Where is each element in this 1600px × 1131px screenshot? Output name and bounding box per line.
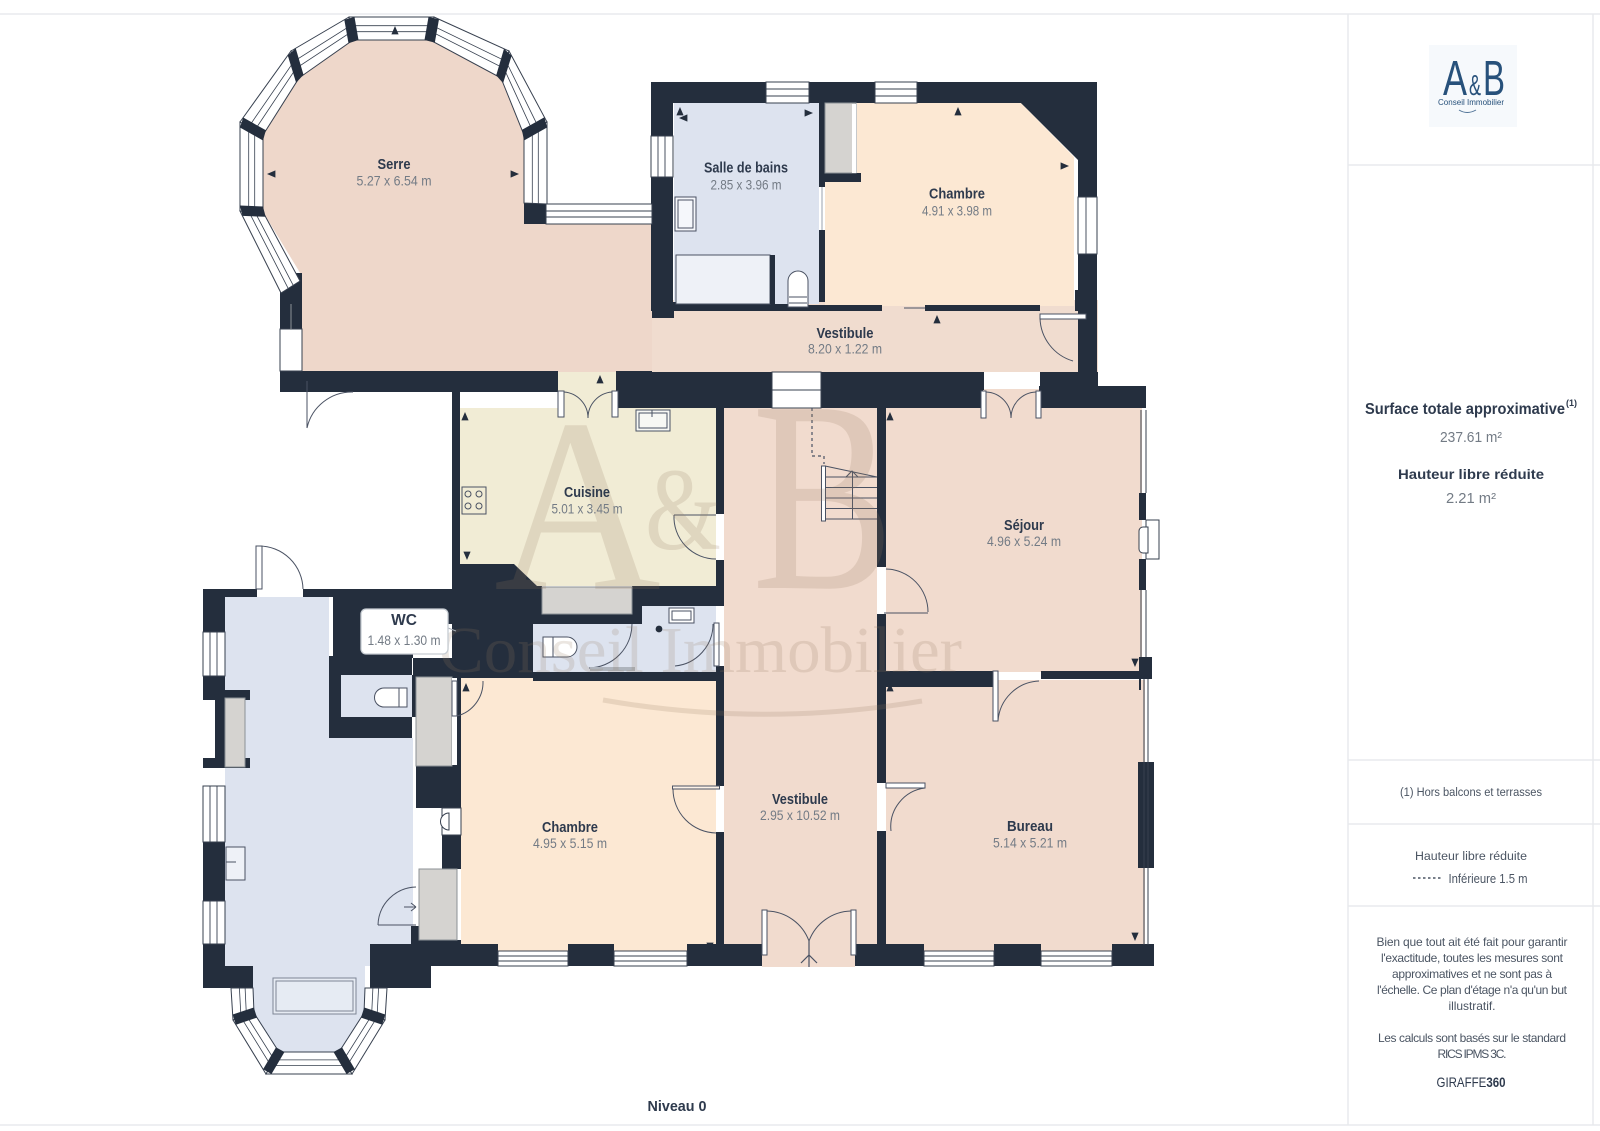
svg-text:l'échelle. Ce plan d'étage n'a: l'échelle. Ce plan d'étage n'a qu'un but	[1377, 983, 1568, 997]
svg-text:Vestibule: Vestibule	[772, 792, 828, 808]
svg-text:Chambre: Chambre	[542, 820, 598, 836]
svg-text:Séjour: Séjour	[1004, 518, 1044, 534]
svg-text:l'exactitude, toutes les mesur: l'exactitude, toutes les mesures sont	[1381, 951, 1564, 965]
svg-text:Salle de bains: Salle de bains	[704, 161, 788, 177]
svg-text:1.48 x 1.30 m: 1.48 x 1.30 m	[368, 632, 441, 648]
svg-text:237.61 m²: 237.61 m²	[1440, 430, 1502, 446]
svg-text:4.95 x 5.15 m: 4.95 x 5.15 m	[533, 835, 607, 851]
svg-text:5.01 x 3.45 m: 5.01 x 3.45 m	[552, 501, 623, 517]
svg-text:(1) Hors balcons et terrasses: (1) Hors balcons et terrasses	[1400, 785, 1542, 799]
svg-text:GIRAFFE360: GIRAFFE360	[1437, 1074, 1506, 1090]
svg-text:Niveau 0: Niveau 0	[648, 1099, 707, 1115]
svg-text:Hauteur libre réduite: Hauteur libre réduite	[1415, 849, 1527, 863]
svg-text:Bien que tout ait été fait pou: Bien que tout ait été fait pour garantir	[1377, 935, 1568, 949]
svg-text:5.14 x 5.21 m: 5.14 x 5.21 m	[993, 835, 1067, 851]
svg-text:4.96 x 5.24 m: 4.96 x 5.24 m	[987, 533, 1061, 549]
svg-text:Surface totale approximative: Surface totale approximative	[1365, 401, 1565, 418]
svg-text:approximatives et ne sont pas: approximatives et ne sont pas à	[1392, 967, 1552, 981]
svg-text:Chambre: Chambre	[929, 187, 985, 203]
svg-text:Conseil Immobilier: Conseil Immobilier	[439, 614, 962, 687]
svg-text:Les calculs sont basés sur le: Les calculs sont basés sur le standard	[1378, 1031, 1566, 1045]
svg-text:2.85 x 3.96 m: 2.85 x 3.96 m	[711, 177, 782, 193]
svg-text:8.20 x 1.22 m: 8.20 x 1.22 m	[808, 341, 882, 357]
svg-text:B: B	[752, 346, 894, 648]
svg-text:2.95 x 10.52 m: 2.95 x 10.52 m	[760, 807, 840, 823]
svg-text:&: &	[645, 444, 721, 575]
svg-text:5.27 x 6.54 m: 5.27 x 6.54 m	[357, 173, 432, 189]
svg-text:Conseil Immobilier: Conseil Immobilier	[1438, 97, 1504, 107]
svg-text:illustratif.: illustratif.	[1449, 999, 1496, 1013]
svg-text:Inférieure 1.5 m: Inférieure 1.5 m	[1449, 872, 1528, 886]
svg-text:(1): (1)	[1566, 398, 1577, 408]
svg-text:4.91 x 3.98 m: 4.91 x 3.98 m	[922, 203, 992, 219]
svg-text:Serre: Serre	[378, 157, 411, 173]
svg-text:RICS IPMS 3C.: RICS IPMS 3C.	[1438, 1047, 1507, 1061]
svg-text:Bureau: Bureau	[1007, 819, 1053, 835]
svg-text:Hauteur libre réduite: Hauteur libre réduite	[1398, 466, 1544, 482]
svg-text:WC: WC	[391, 612, 417, 629]
svg-text:Cuisine: Cuisine	[564, 485, 610, 501]
svg-text:2.21 m²: 2.21 m²	[1446, 491, 1496, 507]
